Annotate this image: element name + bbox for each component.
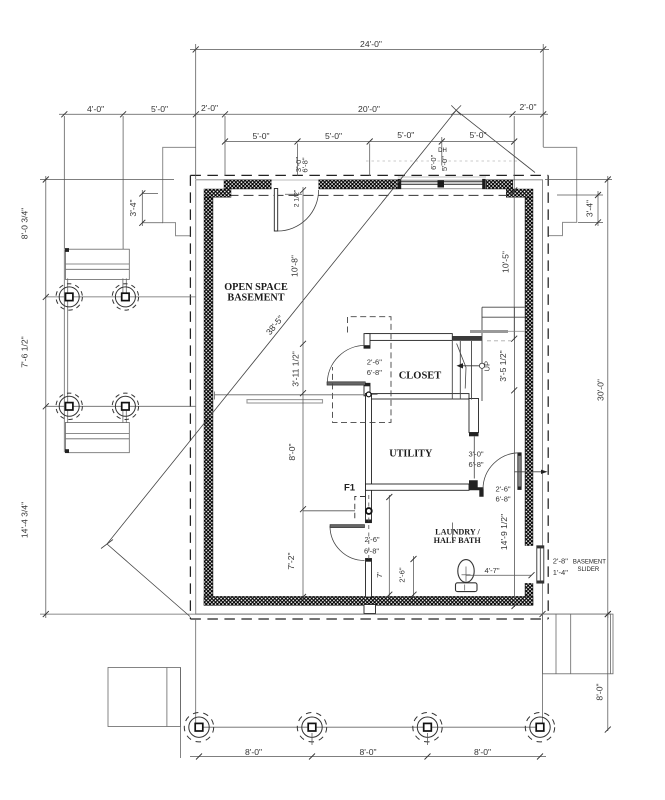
svg-text:14'-4 3/4": 14'-4 3/4" — [20, 502, 30, 538]
svg-text:8'-0": 8'-0" — [474, 747, 491, 757]
svg-text:BASEMENT: BASEMENT — [573, 560, 606, 566]
svg-text:CLOSET: CLOSET — [399, 371, 442, 382]
svg-text:6'-8": 6'-8" — [469, 460, 484, 469]
svg-text:2'-8": 2'-8" — [553, 556, 568, 565]
svg-text:3'-0": 3'-0" — [469, 449, 484, 458]
svg-text:5'-0": 5'-0" — [440, 156, 449, 171]
svg-text:24'-0": 24'-0" — [360, 39, 382, 49]
svg-text:5'-0": 5'-0" — [151, 104, 168, 114]
svg-text:6'-0": 6'-0" — [429, 154, 438, 169]
svg-text:2 1/2": 2 1/2" — [293, 189, 300, 207]
svg-text:3'-11 1/2": 3'-11 1/2" — [291, 351, 301, 387]
svg-text:7': 7' — [375, 572, 384, 578]
svg-text:8'-0": 8'-0" — [245, 747, 262, 757]
svg-text:3'-5 1/2": 3'-5 1/2" — [498, 350, 508, 381]
svg-text:5'-0": 5'-0" — [325, 131, 342, 141]
svg-text:8'-0": 8'-0" — [595, 683, 605, 700]
svg-text:F1: F1 — [344, 483, 356, 494]
svg-text:5'-0": 5'-0" — [397, 130, 414, 140]
svg-text:3'-4": 3'-4" — [585, 200, 595, 217]
svg-text:10'-8": 10'-8" — [290, 255, 300, 277]
svg-text:8'-0": 8'-0" — [359, 747, 376, 757]
svg-text:10'-5": 10'-5" — [501, 251, 511, 273]
svg-text:6'-8": 6'-8" — [364, 547, 379, 556]
svg-text:8'-0": 8'-0" — [287, 443, 297, 460]
svg-text:5'-0": 5'-0" — [252, 131, 269, 141]
svg-text:UP: UP — [483, 361, 492, 372]
svg-text:2'-0": 2'-0" — [201, 103, 218, 113]
svg-text:30'-0": 30'-0" — [596, 379, 606, 401]
svg-text:4'-0": 4'-0" — [87, 104, 104, 114]
svg-text:5'-0": 5'-0" — [469, 130, 486, 140]
svg-text:6'-8": 6'-8" — [300, 157, 309, 172]
svg-text:2'-6": 2'-6" — [398, 567, 407, 582]
svg-text:UTILITY: UTILITY — [389, 449, 433, 460]
svg-text:6'-8": 6'-8" — [367, 368, 382, 377]
svg-text:4'-7": 4'-7" — [484, 566, 499, 575]
svg-text:14'-9 1/2": 14'-9 1/2" — [499, 514, 509, 550]
svg-text:1'-4": 1'-4" — [553, 568, 568, 577]
svg-text:BASEMENT: BASEMENT — [227, 293, 284, 304]
svg-text:3'-4": 3'-4" — [128, 199, 138, 216]
svg-text:HALF BATH: HALF BATH — [434, 536, 482, 545]
svg-text:7'-2": 7'-2" — [286, 552, 296, 569]
svg-text:7'-6 1/2": 7'-6 1/2" — [20, 336, 30, 367]
svg-text:8'-0 3/4": 8'-0 3/4" — [20, 208, 30, 239]
svg-text:20'-0": 20'-0" — [358, 104, 380, 114]
svg-text:2'-6": 2'-6" — [496, 484, 511, 493]
svg-text:2'-6": 2'-6" — [367, 358, 382, 367]
svg-text:SLIDER: SLIDER — [578, 567, 600, 573]
svg-text:6'-8": 6'-8" — [496, 495, 511, 504]
svg-text:OPEN SPACE: OPEN SPACE — [224, 282, 288, 293]
svg-text:DH: DH — [438, 148, 447, 154]
svg-text:2'-6": 2'-6" — [365, 535, 380, 544]
svg-text:2'-0": 2'-0" — [519, 102, 536, 112]
